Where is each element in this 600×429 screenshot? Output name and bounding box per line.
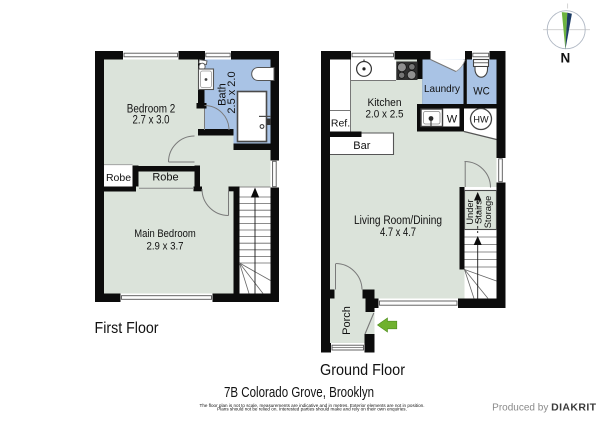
svg-text:Ground Floor: Ground Floor <box>320 362 405 379</box>
svg-text:N: N <box>561 51 571 66</box>
svg-text:Laundry: Laundry <box>424 83 461 95</box>
svg-text:Ref.: Ref. <box>331 118 350 130</box>
svg-text:Kitchen: Kitchen <box>368 97 402 109</box>
svg-text:Bar: Bar <box>353 140 370 152</box>
svg-text:Plans should not be relied on.: Plans should not be relied on. Intereste… <box>217 407 407 412</box>
svg-text:4.7 x 4.7: 4.7 x 4.7 <box>380 227 416 239</box>
svg-text:Storage: Storage <box>483 196 493 229</box>
svg-text:W: W <box>447 114 458 126</box>
svg-text:Porch: Porch <box>341 306 353 335</box>
svg-text:2.7 x 3.0: 2.7 x 3.0 <box>133 115 170 127</box>
svg-text:2.0 x 2.5: 2.0 x 2.5 <box>366 109 404 121</box>
svg-text:Living Room/Dining: Living Room/Dining <box>354 215 442 227</box>
svg-text:First Floor: First Floor <box>95 320 159 337</box>
svg-text:Main Bedroom: Main Bedroom <box>134 228 196 240</box>
svg-text:Robe: Robe <box>106 172 131 184</box>
svg-text:Produced by DIAKRIT: Produced by DIAKRIT <box>492 402 597 414</box>
svg-text:2.5 x 2.0: 2.5 x 2.0 <box>226 71 238 113</box>
svg-text:2.9 x 3.7: 2.9 x 3.7 <box>147 241 184 253</box>
svg-text:7B Colorado Grove, Brooklyn: 7B Colorado Grove, Brooklyn <box>224 385 374 401</box>
svg-text:Robe: Robe <box>152 172 178 184</box>
svg-text:WC: WC <box>473 86 490 98</box>
svg-text:HW: HW <box>473 114 489 125</box>
